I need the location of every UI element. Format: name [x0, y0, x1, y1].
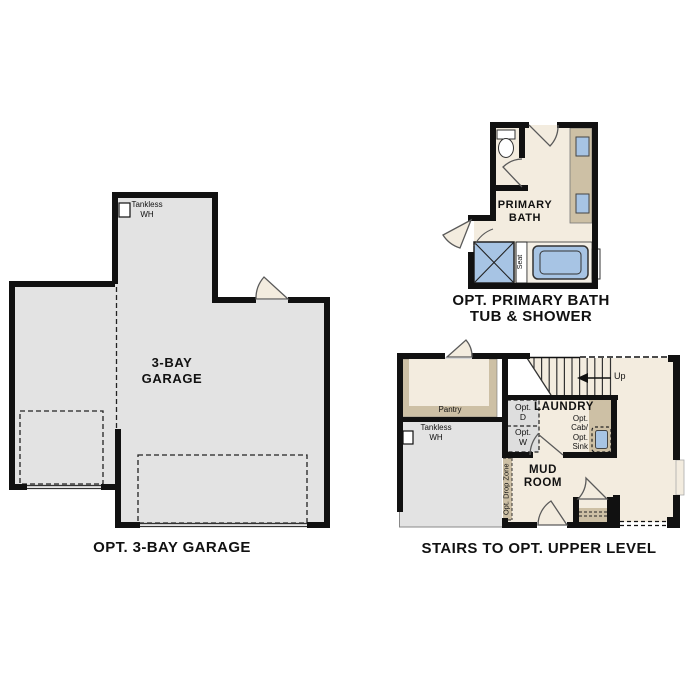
- opt-washer-label: Opt. W: [507, 427, 539, 447]
- toilet-icon: [497, 130, 515, 158]
- laundry-label: LAUNDRY: [529, 401, 599, 414]
- garage-caption: OPT. 3-BAY GARAGE: [42, 539, 302, 556]
- tankless-wh-label: Tankless WH: [125, 200, 169, 219]
- floorplan-sheet: Tankless WH 3-BAY GARAGE OPT. 3-BAY GARA…: [0, 0, 687, 687]
- stairs-caption: STAIRS TO OPT. UPPER LEVEL: [399, 540, 679, 557]
- shower-icon: [474, 242, 514, 283]
- seat-label: Seat: [516, 242, 527, 283]
- garage-door-swing-icon: [256, 277, 288, 299]
- tub-icon: [527, 242, 600, 283]
- primary-bath-caption: OPT. PRIMARY BATH TUB & SHOWER: [436, 293, 626, 325]
- opt-sink-icon: [596, 431, 608, 449]
- opt-cab-sink-label: Opt. Cab/ Opt. Sink: [554, 414, 588, 451]
- garage-room-label: 3-BAY GARAGE: [110, 355, 234, 387]
- tankless-wh-label: Tankless WH: [412, 423, 460, 442]
- opt-drop-zone-label: Opt. Drop Zone: [467, 484, 547, 494]
- up-label: Up: [614, 371, 638, 381]
- closet-shelf: [579, 508, 607, 522]
- floorplan-drawing: [0, 0, 687, 687]
- sink-icon: [576, 194, 589, 213]
- primary-bath-room-label: PRIMARY BATH: [485, 199, 565, 225]
- opt-dryer-label: Opt. D: [507, 402, 539, 422]
- sink-icon: [576, 137, 589, 156]
- pantry-label: Pantry: [424, 405, 476, 414]
